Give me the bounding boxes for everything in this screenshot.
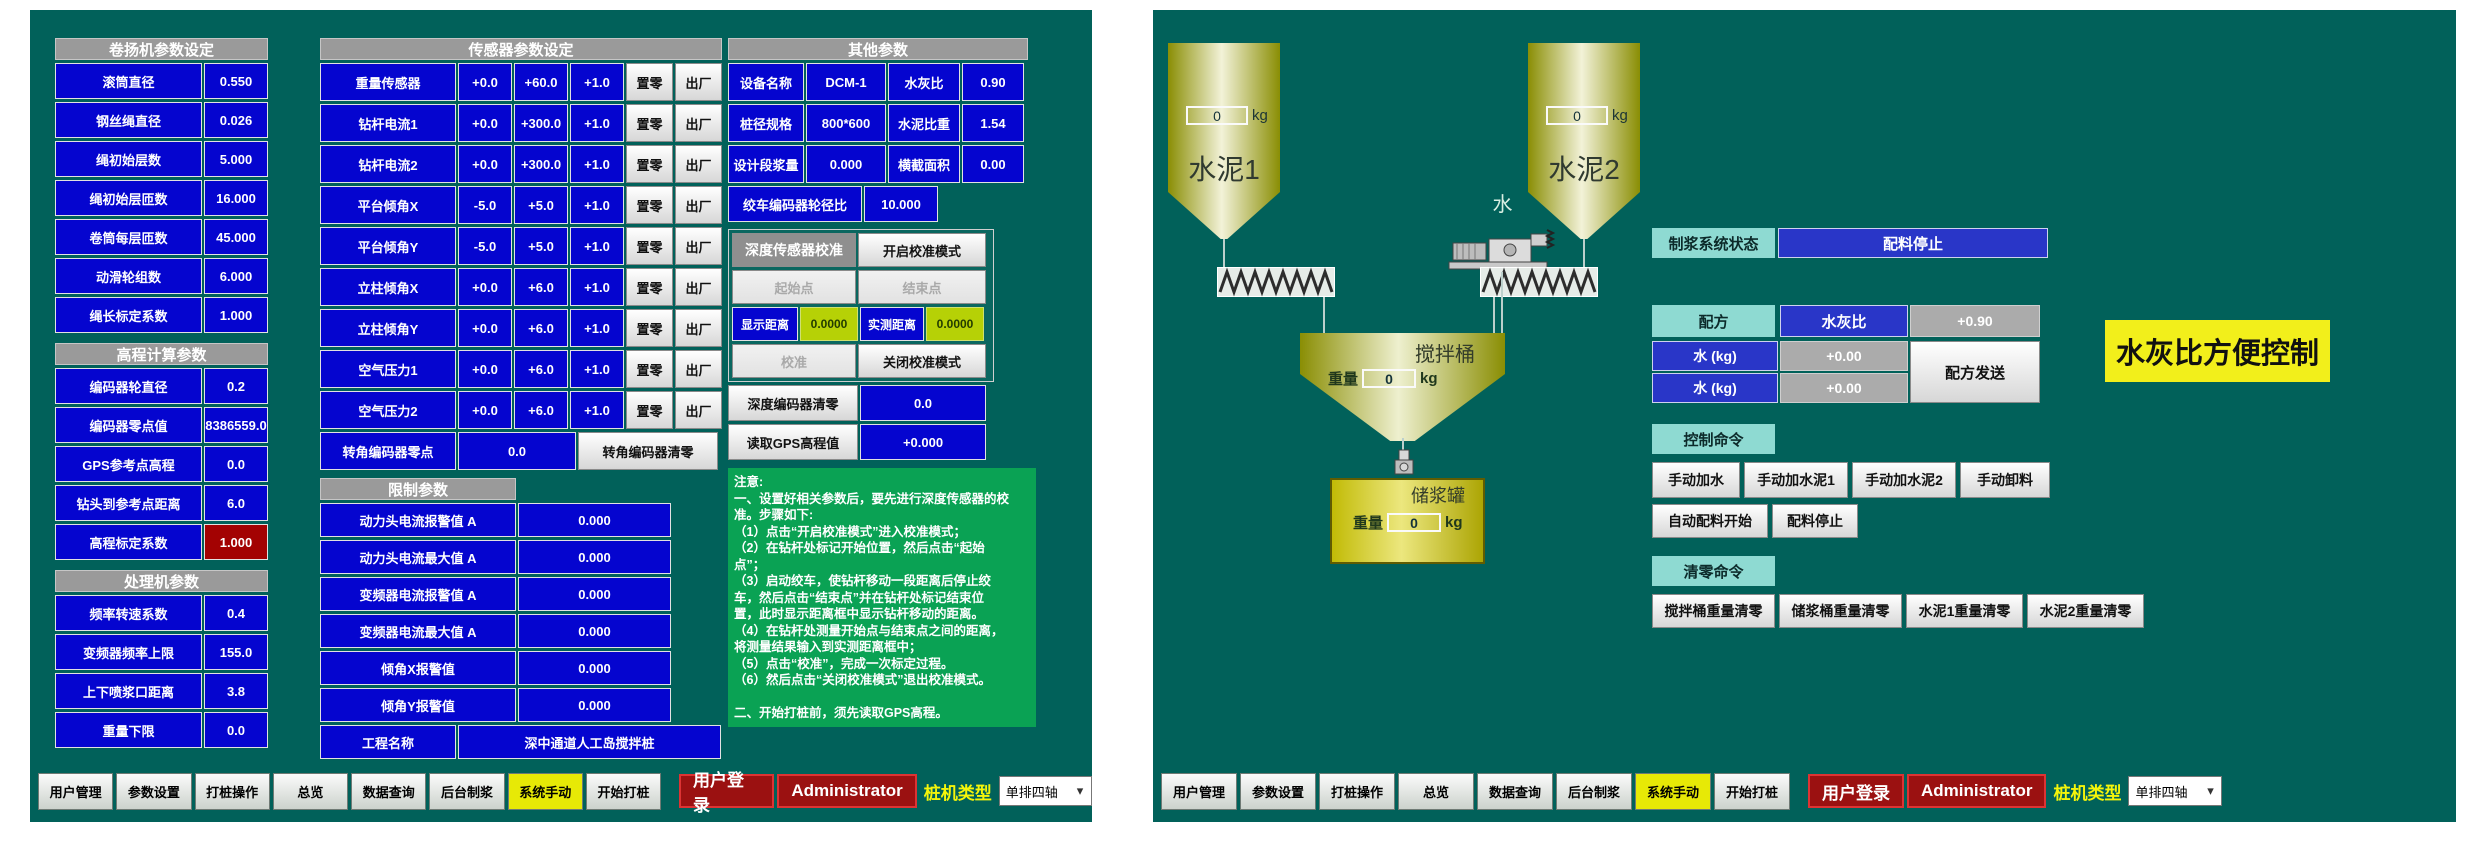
param-value[interactable]: 5.000 [204, 141, 268, 177]
command-button-手动卸料[interactable]: 手动卸料 [1960, 462, 2050, 498]
sensor-offset-value[interactable]: +0.0 [458, 104, 512, 142]
tank-weight-label: 重量 [1353, 512, 1383, 533]
param-section: 处理机参数频率转速系数0.4变频器频率上限155.0上下喷浆口距离3.8重量下限… [55, 570, 268, 748]
bottom-nav-bar: 用户管理参数设置打桩操作总览数据查询后台制浆系统手动开始打桩用户登录Admini… [1161, 770, 2222, 812]
parameter-settings-panel: 卷扬机参数设定滚筒直径0.550钢丝绳直径0.026绳初始层数5.000绳初始层… [30, 10, 1092, 822]
other-section-title: 其他参数 [728, 38, 1028, 60]
other-value[interactable]: 0.000 [806, 145, 886, 183]
other-label: 水泥比重 [888, 104, 960, 142]
recipe-water2-label: 水 (kg) [1652, 373, 1778, 403]
depth-encoder-clear-row: 深度编码器清零 0.0 [728, 385, 1052, 421]
sensor-factory-button[interactable]: 出厂 [675, 186, 722, 224]
pile-type-value: 单排四轴 [2135, 782, 2187, 801]
conveyor2-discharge-line [1493, 297, 1495, 333]
param-label: 编码器零点值 [55, 407, 202, 443]
calibration-notes: 注意:一、设置好相关参数后，要先进行深度传感器的校准。步骤如下:（1）点击“开启… [728, 468, 1036, 727]
sensor-label: 立柱倾角X [320, 268, 456, 306]
sensor-zero-button[interactable]: 置零 [626, 309, 673, 347]
current-username: Administrator [777, 774, 916, 808]
nav-button-开始打桩[interactable]: 开始打桩 [586, 773, 661, 810]
screw-conveyor-2-icon [1480, 267, 1598, 297]
other-param-row: 设计段浆量0.000横截面积0.00 [728, 145, 1052, 183]
recipe-water1-value[interactable]: +0.00 [1780, 341, 1908, 371]
recipe-header: 配方 [1652, 305, 1775, 337]
tank-weight-display: 重量 0 kg [1353, 512, 1463, 533]
nav-button-数据查询[interactable]: 数据查询 [1477, 773, 1553, 810]
water-cement-ratio-label: 水灰比 [1780, 305, 1908, 337]
param-row: GPS参考点高程0.0 [55, 446, 268, 482]
sensor-parameter-column: 传感器参数设定 重量传感器+0.0+60.0+1.0置零出厂钻杆电流1+0.0+… [320, 38, 722, 759]
read-gps-row: 读取GPS高程值 +0.000 [728, 424, 1052, 460]
sensor-row: 空气压力2+0.0+6.0+1.0置零出厂 [320, 391, 722, 429]
param-label: 上下喷浆口距离 [55, 673, 202, 709]
mixer-kg-unit: kg [1420, 370, 1438, 387]
chevron-down-icon: ▾ [2200, 778, 2220, 804]
winch-encoder-ratio-value[interactable]: 10.000 [864, 186, 938, 222]
notes-line: 点”； [734, 557, 1030, 574]
sensor-label: 钻杆电流2 [320, 145, 456, 183]
silo1-feed-line [1223, 239, 1225, 267]
pile-type-label: 桩机类型 [2053, 779, 2121, 804]
other-rows: 设备名称DCM-1水灰比0.90桩径规格800*600水泥比重1.54设计段浆量… [728, 63, 1052, 183]
winch-encoder-ratio-label: 绞车编码器轮径比 [728, 186, 862, 222]
param-row: 绳长标定系数1.000 [55, 297, 268, 333]
sensor-rows: 重量传感器+0.0+60.0+1.0置零出厂钻杆电流1+0.0+300.0+1.… [320, 63, 722, 429]
slurry-tank-label: 储浆罐 [1378, 482, 1498, 508]
sensor-zero-button[interactable]: 置零 [626, 104, 673, 142]
slurry-pump-icon [1389, 448, 1419, 478]
command-button-手动加水泥1[interactable]: 手动加水泥1 [1744, 462, 1848, 498]
start-point-button[interactable]: 起始点 [732, 270, 856, 304]
param-row: 上下喷浆口距离3.8 [55, 673, 268, 709]
notes-line: 置，此时显示距离框中显示钻杆移动的距离。 [734, 606, 1030, 623]
open-calibration-mode-button[interactable]: 开启校准模式 [858, 233, 986, 267]
sensor-row: 立柱倾角X+0.0+6.0+1.0置零出厂 [320, 268, 722, 306]
notes-line: 注意: [734, 474, 1030, 491]
sensor-row: 钻杆电流1+0.0+300.0+1.0置零出厂 [320, 104, 722, 142]
param-label: 滚筒直径 [55, 63, 202, 99]
sensor-section-title: 传感器参数设定 [320, 38, 722, 60]
slurry-system-status-label: 制浆系统状态 [1652, 228, 1775, 258]
param-row: 编码器轮直径0.2 [55, 368, 268, 404]
limit-value[interactable]: 0.000 [518, 503, 671, 537]
param-row: 高程标定系数1.000 [55, 524, 268, 560]
other-label: 设备名称 [728, 63, 804, 101]
section-title: 处理机参数 [55, 570, 268, 592]
command-button-搅拌桶重量清零[interactable]: 搅拌桶重量清零 [1652, 594, 1775, 628]
sensor-scale-value[interactable]: +1.0 [570, 63, 624, 101]
sensor-label: 平台倾角Y [320, 227, 456, 265]
sensor-zero-button[interactable]: 置零 [626, 145, 673, 183]
sensor-scale-value[interactable]: +1.0 [570, 227, 624, 265]
sensor-factory-button[interactable]: 出厂 [675, 227, 722, 265]
sensor-zero-button[interactable]: 置零 [626, 268, 673, 306]
cement1-kg-unit: kg [1252, 107, 1268, 124]
limit-row: 倾角Y报警值0.000 [320, 688, 722, 722]
limit-rows: 动力头电流报警值 A0.000动力头电流最大值 A0.000变频器电流报警值 A… [320, 503, 722, 722]
mixer-weight-box: 0 [1362, 369, 1416, 388]
sensor-scale-value[interactable]: +1.0 [570, 268, 624, 306]
end-point-button[interactable]: 结束点 [858, 270, 986, 304]
depth-sensor-calibration-group: 深度传感器校准 开启校准模式 起始点 结束点 显示距离 0.0000 实测距离 … [728, 229, 994, 382]
param-row: 变频器频率上限155.0 [55, 634, 268, 670]
section-title: 高程计算参数 [55, 343, 268, 365]
sensor-row: 重量传感器+0.0+60.0+1.0置零出厂 [320, 63, 722, 101]
sensor-range-value[interactable]: +6.0 [514, 268, 568, 306]
manual-button-row: 手动加水手动加水泥1手动加水泥2手动卸料 [1652, 462, 2050, 498]
sensor-range-value[interactable]: +6.0 [514, 309, 568, 347]
sensor-scale-value[interactable]: +1.0 [570, 309, 624, 347]
sensor-offset-value[interactable]: +0.0 [458, 391, 512, 429]
nav-button-数据查询[interactable]: 数据查询 [351, 773, 426, 810]
section-title: 卷扬机参数设定 [55, 38, 268, 60]
param-value[interactable]: 6.0 [204, 485, 268, 521]
sensor-range-value[interactable]: +6.0 [514, 391, 568, 429]
param-value[interactable]: 6.000 [204, 258, 268, 294]
param-label: 变频器频率上限 [55, 634, 202, 670]
sensor-factory-button[interactable]: 出厂 [675, 104, 722, 142]
notes-line: 二、开始打桩前，须先读取GPS高程。 [734, 705, 1030, 722]
sensor-range-value[interactable]: +60.0 [514, 63, 568, 101]
other-value[interactable]: 800*600 [806, 104, 886, 142]
sensor-label: 空气压力1 [320, 350, 456, 388]
sensor-offset-value[interactable]: -5.0 [458, 227, 512, 265]
param-label: 动滑轮组数 [55, 258, 202, 294]
limit-label: 变频器电流报警值 A [320, 577, 516, 611]
notes-line [734, 689, 1030, 705]
pile-type-label: 桩机类型 [924, 779, 992, 804]
command-button-手动加水泥2[interactable]: 手动加水泥2 [1852, 462, 1956, 498]
sensor-offset-value[interactable]: -5.0 [458, 186, 512, 224]
slurry-system-status-value: 配料停止 [1778, 228, 2048, 258]
nav-button-参数设置[interactable]: 参数设置 [1240, 773, 1316, 810]
sensor-scale-value[interactable]: +1.0 [570, 186, 624, 224]
notes-line: 将测量结果输入到实测距离框中； [734, 639, 1030, 656]
sensor-zero-button[interactable]: 置零 [626, 63, 673, 101]
param-label: 钻头到参考点距离 [55, 485, 202, 521]
sensor-factory-button[interactable]: 出厂 [675, 391, 722, 429]
water-label: 水 [1445, 188, 1560, 217]
other-value[interactable]: DCM-1 [806, 63, 886, 101]
limit-value[interactable]: 0.000 [518, 577, 671, 611]
sensor-factory-button[interactable]: 出厂 [675, 145, 722, 183]
param-row: 滚筒直径0.550 [55, 63, 268, 99]
param-row: 动滑轮组数6.000 [55, 258, 268, 294]
limit-value[interactable]: 0.000 [518, 688, 671, 722]
param-value[interactable]: 45.000 [204, 219, 268, 255]
current-username: Administrator [1907, 774, 2046, 808]
sensor-offset-value[interactable]: +0.0 [458, 268, 512, 306]
screw-conveyor-1-icon [1217, 267, 1335, 297]
cement1-label: 水泥1 [1168, 148, 1280, 188]
sensor-zero-button[interactable]: 置零 [626, 391, 673, 429]
nav-button-后台制浆[interactable]: 后台制浆 [1556, 773, 1632, 810]
nav-button-后台制浆[interactable]: 后台制浆 [429, 773, 504, 810]
param-row: 编码器零点值8386559.0 [55, 407, 268, 443]
sensor-row: 平台倾角X-5.0+5.0+1.0置零出厂 [320, 186, 722, 224]
param-value[interactable]: 155.0 [204, 634, 268, 670]
sensor-label: 钻杆电流1 [320, 104, 456, 142]
project-name-row: 工程名称 深中通道人工岛搅拌桩 [320, 725, 722, 759]
cement1-weight-box: 0 [1186, 106, 1248, 125]
auto-button-row: 自动配料开始配料停止 [1652, 504, 1858, 538]
sensor-label: 立柱倾角Y [320, 309, 456, 347]
pile-type-dropdown[interactable]: 单排四轴▾ [999, 776, 1092, 806]
limit-label: 倾角X报警值 [320, 651, 516, 685]
sensor-zero-button[interactable]: 置零 [626, 227, 673, 265]
param-label: 卷筒每层匝数 [55, 219, 202, 255]
conveyor1-discharge-line [1323, 297, 1325, 333]
notes-line: （1）点击“开启校准模式”进入校准模式； [734, 524, 1030, 541]
sensor-label: 平台倾角X [320, 186, 456, 224]
limit-value[interactable]: 0.000 [518, 540, 671, 574]
param-label: 绳初始层数 [55, 141, 202, 177]
limit-section-title: 限制参数 [320, 478, 516, 500]
command-button-储浆桶重量清零[interactable]: 储浆桶重量清零 [1779, 594, 1902, 628]
nav-button-打桩操作[interactable]: 打桩操作 [195, 773, 270, 810]
sensor-offset-value[interactable]: +0.0 [458, 145, 512, 183]
sensor-zero-button[interactable]: 置零 [626, 350, 673, 388]
sensor-scale-value[interactable]: +1.0 [570, 104, 624, 142]
sensor-factory-button[interactable]: 出厂 [675, 309, 722, 347]
pile-type-dropdown[interactable]: 单排四轴▾ [2128, 776, 2222, 806]
mixer-weight-display: 重量 0 kg [1328, 368, 1438, 389]
limit-value[interactable]: 0.000 [518, 651, 671, 685]
cement1-weight-display: 0 kg [1186, 106, 1268, 125]
param-value[interactable]: 16.000 [204, 180, 268, 216]
cement-silo-1 [1168, 43, 1280, 239]
param-section: 卷扬机参数设定滚筒直径0.550钢丝绳直径0.026绳初始层数5.000绳初始层… [55, 38, 268, 333]
notes-line: 车，然后点击“结束点”并在钻杆处标记结束位 [734, 590, 1030, 607]
command-button-配料停止[interactable]: 配料停止 [1772, 504, 1858, 538]
read-gps-elevation-button[interactable]: 读取GPS高程值 [728, 424, 858, 460]
param-label: 编码器轮直径 [55, 368, 202, 404]
angle-encoder-zero-label: 转角编码器零点 [320, 432, 456, 470]
tank-weight-box: 0 [1387, 513, 1441, 532]
depth-encoder-value: 0.0 [860, 385, 986, 421]
bottom-nav-bar: 用户管理参数设置打桩操作总览数据查询后台制浆系统手动开始打桩用户登录Admini… [38, 770, 1092, 812]
clear-button-row: 搅拌桶重量清零储浆桶重量清零水泥1重量清零水泥2重量清零 [1652, 594, 2144, 628]
sensor-scale-value[interactable]: +1.0 [570, 391, 624, 429]
other-label: 桩径规格 [728, 104, 804, 142]
nav-button-打桩操作[interactable]: 打桩操作 [1319, 773, 1395, 810]
notes-line: （5）点击“校准”，完成一次标定过程。 [734, 656, 1030, 673]
notes-line: （4）在钻杆处测量开始点与结束点之间的距离， [734, 623, 1030, 640]
param-label: 频率转速系数 [55, 595, 202, 631]
sensor-factory-button[interactable]: 出厂 [675, 350, 722, 388]
param-value[interactable]: 0.0 [204, 712, 268, 748]
nav-button-总览[interactable]: 总览 [273, 773, 348, 810]
command-button-手动加水[interactable]: 手动加水 [1652, 462, 1740, 498]
notes-line: 准。步骤如下: [734, 507, 1030, 524]
ratio-quick-control-label: 水灰比方便控制 [2105, 320, 2330, 382]
nav-button-用户管理[interactable]: 用户管理 [38, 773, 113, 810]
param-value[interactable]: 0.0 [204, 446, 268, 482]
limit-value[interactable]: 0.000 [518, 614, 671, 648]
param-row: 重量下限0.0 [55, 712, 268, 748]
param-row: 频率转速系数0.4 [55, 595, 268, 631]
nav-button-开始打桩[interactable]: 开始打桩 [1714, 773, 1790, 810]
sensor-offset-value[interactable]: +0.0 [458, 350, 512, 388]
cement2-label: 水泥2 [1528, 148, 1640, 188]
limit-label: 动力头电流最大值 A [320, 540, 516, 574]
limit-row: 倾角X报警值0.000 [320, 651, 722, 685]
command-button-水泥2重量清零[interactable]: 水泥2重量清零 [2027, 594, 2144, 628]
nav-button-参数设置[interactable]: 参数设置 [116, 773, 191, 810]
angle-encoder-row: 转角编码器零点 0.0 转角编码器清零 [320, 432, 722, 470]
param-value[interactable]: 0.026 [204, 102, 268, 138]
param-label: 钢丝绳直径 [55, 102, 202, 138]
water-feed-line [1501, 272, 1503, 333]
notes-line: （6）然后点击“关闭校准模式”退出校准模式。 [734, 672, 1030, 689]
param-label: 绳初始层匝数 [55, 180, 202, 216]
user-login-button[interactable]: 用户登录 [679, 774, 774, 808]
nav-button-系统手动[interactable]: 系统手动 [508, 773, 583, 810]
calibration-header: 深度传感器校准 [732, 233, 856, 267]
other-value[interactable]: 1.54 [962, 104, 1024, 142]
param-label: GPS参考点高程 [55, 446, 202, 482]
recipe-water1-label: 水 (kg) [1652, 341, 1778, 371]
measured-distance-label: 实测距离 [860, 307, 924, 341]
display-distance-label: 显示距离 [732, 307, 798, 341]
water-cement-ratio-value[interactable]: +0.90 [1910, 305, 2040, 337]
param-label: 绳长标定系数 [55, 297, 202, 333]
limit-row: 动力头电流最大值 A0.000 [320, 540, 722, 574]
sensor-offset-value[interactable]: +0.0 [458, 63, 512, 101]
other-param-row: 设备名称DCM-1水灰比0.90 [728, 63, 1052, 101]
mixer-weight-label: 重量 [1328, 368, 1358, 389]
display-distance-value: 0.0000 [800, 307, 858, 341]
water-pump-icon [1445, 222, 1560, 272]
angle-encoder-clear-button[interactable]: 转角编码器清零 [578, 432, 718, 470]
other-value[interactable]: 0.90 [962, 63, 1024, 101]
param-label: 重量下限 [55, 712, 202, 748]
gps-elevation-value: +0.000 [860, 424, 986, 460]
other-label: 横截面积 [888, 145, 960, 183]
limit-row: 变频器电流报警值 A0.000 [320, 577, 722, 611]
mixing-tank-label: 搅拌桶 [1415, 338, 1475, 367]
sensor-offset-value[interactable]: +0.0 [458, 309, 512, 347]
limit-label: 倾角Y报警值 [320, 688, 516, 722]
tank-kg-unit: kg [1445, 514, 1463, 531]
silo2-feed-line [1583, 239, 1585, 267]
param-section: 高程计算参数编码器轮直径0.2编码器零点值8386559.0GPS参考点高程0.… [55, 343, 268, 560]
close-calibration-mode-button[interactable]: 关闭校准模式 [858, 344, 986, 378]
sensor-range-value[interactable]: +5.0 [514, 186, 568, 224]
other-value[interactable]: 0.00 [962, 145, 1024, 183]
measured-distance-value[interactable]: 0.0000 [926, 307, 984, 341]
user-login-button[interactable]: 用户登录 [1808, 774, 1904, 808]
param-row: 绳初始层匝数16.000 [55, 180, 268, 216]
project-name-value[interactable]: 深中通道人工岛搅拌桩 [458, 725, 721, 759]
sensor-row: 钻杆电流2+0.0+300.0+1.0置零出厂 [320, 145, 722, 183]
param-value[interactable]: 1.000 [204, 524, 268, 560]
sensor-zero-button[interactable]: 置零 [626, 186, 673, 224]
depth-encoder-clear-button[interactable]: 深度编码器清零 [728, 385, 858, 421]
sensor-label: 空气压力2 [320, 391, 456, 429]
sensor-row: 平台倾角Y-5.0+5.0+1.0置零出厂 [320, 227, 722, 265]
other-label: 设计段浆量 [728, 145, 804, 183]
sensor-range-value[interactable]: +300.0 [514, 145, 568, 183]
sensor-range-value[interactable]: +300.0 [514, 104, 568, 142]
notes-line: 一、设置好相关参数后，要先进行深度传感器的校 [734, 491, 1030, 508]
chevron-down-icon: ▾ [1070, 778, 1090, 804]
limit-label: 变频器电流最大值 A [320, 614, 516, 648]
winch-encoder-ratio-row: 绞车编码器轮径比 10.000 [728, 186, 1052, 222]
sensor-scale-value[interactable]: +1.0 [570, 350, 624, 388]
slurry-mixing-panel: 0 kg 水泥1 0 kg 水泥2 水 搅拌桶 重量 0 kg [1153, 10, 2456, 822]
param-value[interactable]: 8386559.0 [204, 407, 268, 443]
sensor-scale-value[interactable]: +1.0 [570, 145, 624, 183]
notes-line: （2）在钻杆处标记开始位置，然后点击“起始 [734, 540, 1030, 557]
param-label: 高程标定系数 [55, 524, 202, 560]
pile-type-value: 单排四轴 [1006, 782, 1058, 801]
cement2-weight-box: 0 [1546, 106, 1608, 125]
sensor-factory-button[interactable]: 出厂 [675, 268, 722, 306]
limit-label: 动力头电流报警值 A [320, 503, 516, 537]
command-button-自动配料开始[interactable]: 自动配料开始 [1652, 504, 1768, 538]
other-parameter-column: 其他参数 设备名称DCM-1水灰比0.90桩径规格800*600水泥比重1.54… [728, 38, 1052, 727]
command-button-水泥1重量清零[interactable]: 水泥1重量清零 [1906, 594, 2023, 628]
sensor-row: 立柱倾角Y+0.0+6.0+1.0置零出厂 [320, 309, 722, 347]
sensor-factory-button[interactable]: 出厂 [675, 63, 722, 101]
angle-encoder-zero-value[interactable]: 0.0 [458, 432, 576, 470]
param-row: 钻头到参考点距离6.0 [55, 485, 268, 521]
param-value[interactable]: 1.000 [204, 297, 268, 333]
param-row: 钢丝绳直径0.026 [55, 102, 268, 138]
sensor-range-value[interactable]: +6.0 [514, 350, 568, 388]
param-value[interactable]: 3.8 [204, 673, 268, 709]
project-name-label: 工程名称 [320, 725, 456, 759]
nav-button-用户管理[interactable]: 用户管理 [1161, 773, 1237, 810]
sensor-label: 重量传感器 [320, 63, 456, 101]
param-value[interactable]: 0.2 [204, 368, 268, 404]
param-row: 绳初始层数5.000 [55, 141, 268, 177]
recipe-send-button[interactable]: 配方发送 [1910, 341, 2040, 403]
clear-command-header: 清零命令 [1652, 556, 1775, 586]
param-value[interactable]: 0.550 [204, 63, 268, 99]
param-value[interactable]: 0.4 [204, 595, 268, 631]
left-parameter-column: 卷扬机参数设定滚筒直径0.550钢丝绳直径0.026绳初始层数5.000绳初始层… [55, 38, 268, 755]
notes-line: （3）启动绞车，使钻杆移动一段距离后停止绞 [734, 573, 1030, 590]
cement2-kg-unit: kg [1612, 107, 1628, 124]
nav-button-系统手动[interactable]: 系统手动 [1635, 773, 1711, 810]
other-param-row: 桩径规格800*600水泥比重1.54 [728, 104, 1052, 142]
cement2-weight-display: 0 kg [1546, 106, 1628, 125]
other-label: 水灰比 [888, 63, 960, 101]
sensor-range-value[interactable]: +5.0 [514, 227, 568, 265]
param-row: 卷筒每层匝数45.000 [55, 219, 268, 255]
recipe-water2-value[interactable]: +0.00 [1780, 373, 1908, 403]
nav-button-总览[interactable]: 总览 [1398, 773, 1474, 810]
sensor-row: 空气压力1+0.0+6.0+1.0置零出厂 [320, 350, 722, 388]
control-command-header: 控制命令 [1652, 424, 1775, 454]
limit-row: 动力头电流报警值 A0.000 [320, 503, 722, 537]
calibrate-button[interactable]: 校准 [732, 344, 856, 378]
limit-row: 变频器电流最大值 A0.000 [320, 614, 722, 648]
